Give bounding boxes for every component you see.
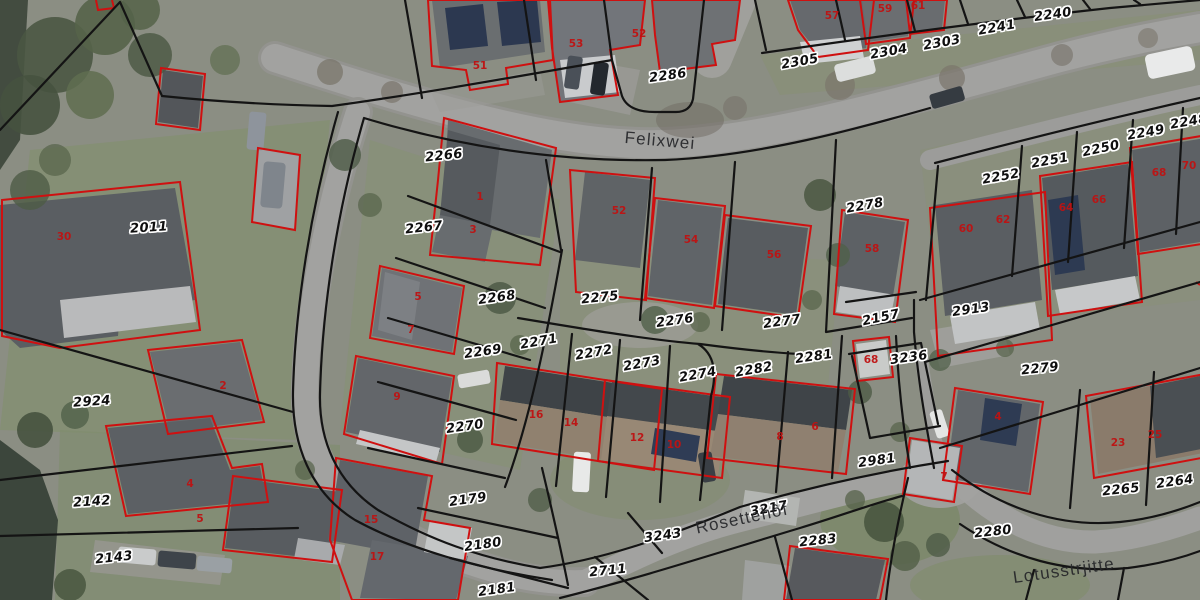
building-number-label: 70	[1182, 160, 1197, 172]
building-number-label: 9	[393, 391, 400, 403]
building-number-label: 14	[564, 417, 579, 429]
building-number-label: 6	[811, 421, 818, 433]
building-number-label: 60	[959, 223, 974, 235]
building-number-label: 7	[407, 324, 414, 336]
building-number-label: 53	[569, 38, 584, 50]
building-number-label: 17	[370, 551, 385, 563]
building-number-label: 62	[996, 214, 1011, 226]
building-number-label: 10	[667, 439, 682, 451]
building-number-label: 4	[186, 478, 193, 490]
building-number-label: 15	[364, 514, 379, 526]
building-number-label: 23	[1111, 437, 1126, 449]
building-number-label: 58	[865, 243, 880, 255]
building-number-label: 68	[864, 354, 879, 366]
building-number-label: 3	[469, 224, 476, 236]
aerial-map-canvas[interactable]: 2286230523042303224122402248224922502251…	[0, 0, 1200, 600]
building-number-label: 5	[414, 291, 421, 303]
building-number-label: 5	[196, 513, 203, 525]
building-number-label: 68	[1152, 167, 1167, 179]
building-number-label: 52	[612, 205, 627, 217]
building-number-label: 52	[632, 28, 647, 40]
building-number-label: 57	[825, 10, 840, 22]
building-number-label: 1	[476, 191, 483, 203]
building-number-label: 7	[940, 471, 947, 483]
building-number-label: 16	[529, 409, 544, 421]
building-number-label: 30	[57, 231, 72, 243]
building-number-label: 54	[684, 234, 699, 246]
building-number-label: 61	[911, 0, 926, 12]
parcel-label: 2924	[73, 393, 112, 411]
building-number-label: 12	[630, 432, 645, 444]
building-number-label: 51	[473, 60, 488, 72]
building-number-label: 8	[776, 431, 783, 443]
parcel-label: 2142	[73, 493, 112, 511]
building-number-label: 64	[1059, 202, 1074, 214]
building-number-label: 56	[767, 249, 782, 261]
building-number-label: 66	[1092, 194, 1107, 206]
building-number-label: 2	[219, 380, 226, 392]
building-number-label: 25	[1148, 429, 1163, 441]
parcel-label: 2011	[130, 219, 169, 237]
building-number-label: 4	[994, 411, 1001, 423]
building-number-label: 59	[878, 3, 893, 15]
